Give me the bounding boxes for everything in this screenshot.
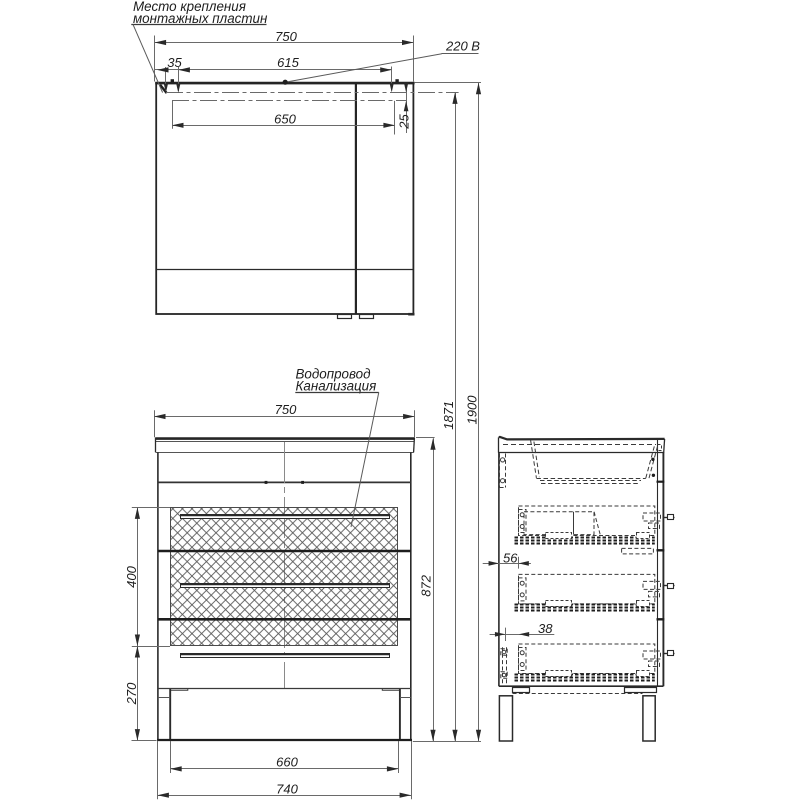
svg-text:660: 660	[276, 754, 298, 769]
svg-text:монтажных пластин: монтажных пластин	[133, 11, 268, 26]
svg-text:400: 400	[124, 565, 139, 587]
svg-text:750: 750	[275, 29, 297, 44]
svg-text:650: 650	[274, 111, 296, 126]
svg-text:35: 35	[167, 55, 182, 70]
svg-text:1900: 1900	[464, 395, 479, 425]
svg-text:Канализация: Канализация	[296, 378, 377, 393]
svg-text:25: 25	[397, 114, 412, 130]
svg-text:615: 615	[277, 55, 299, 70]
svg-text:220 В: 220 В	[445, 39, 480, 54]
svg-text:270: 270	[124, 682, 139, 705]
svg-text:56: 56	[503, 550, 518, 565]
svg-text:872: 872	[419, 574, 434, 596]
svg-text:1871: 1871	[441, 401, 456, 430]
svg-text:740: 740	[276, 781, 298, 796]
svg-text:750: 750	[275, 402, 297, 417]
svg-text:38: 38	[538, 621, 553, 636]
